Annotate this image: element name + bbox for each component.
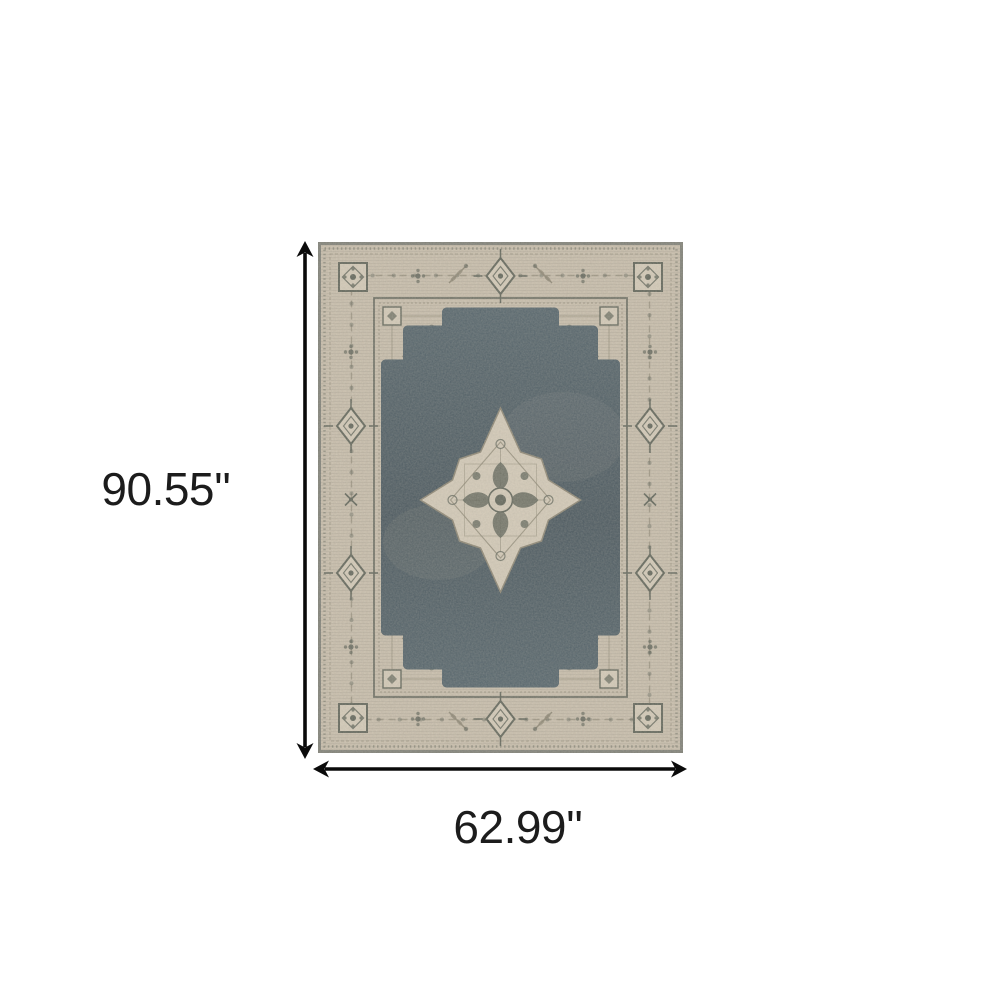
rug-image (318, 242, 683, 753)
height-dimension-label: 90.55'' (101, 466, 230, 512)
width-dimension-label: 62.99'' (453, 804, 582, 850)
product-dimension-image: 90.55'' 62.99'' (0, 0, 1000, 1000)
height-arrow (288, 240, 322, 762)
rug-texture (318, 242, 683, 753)
width-arrow (300, 753, 692, 785)
